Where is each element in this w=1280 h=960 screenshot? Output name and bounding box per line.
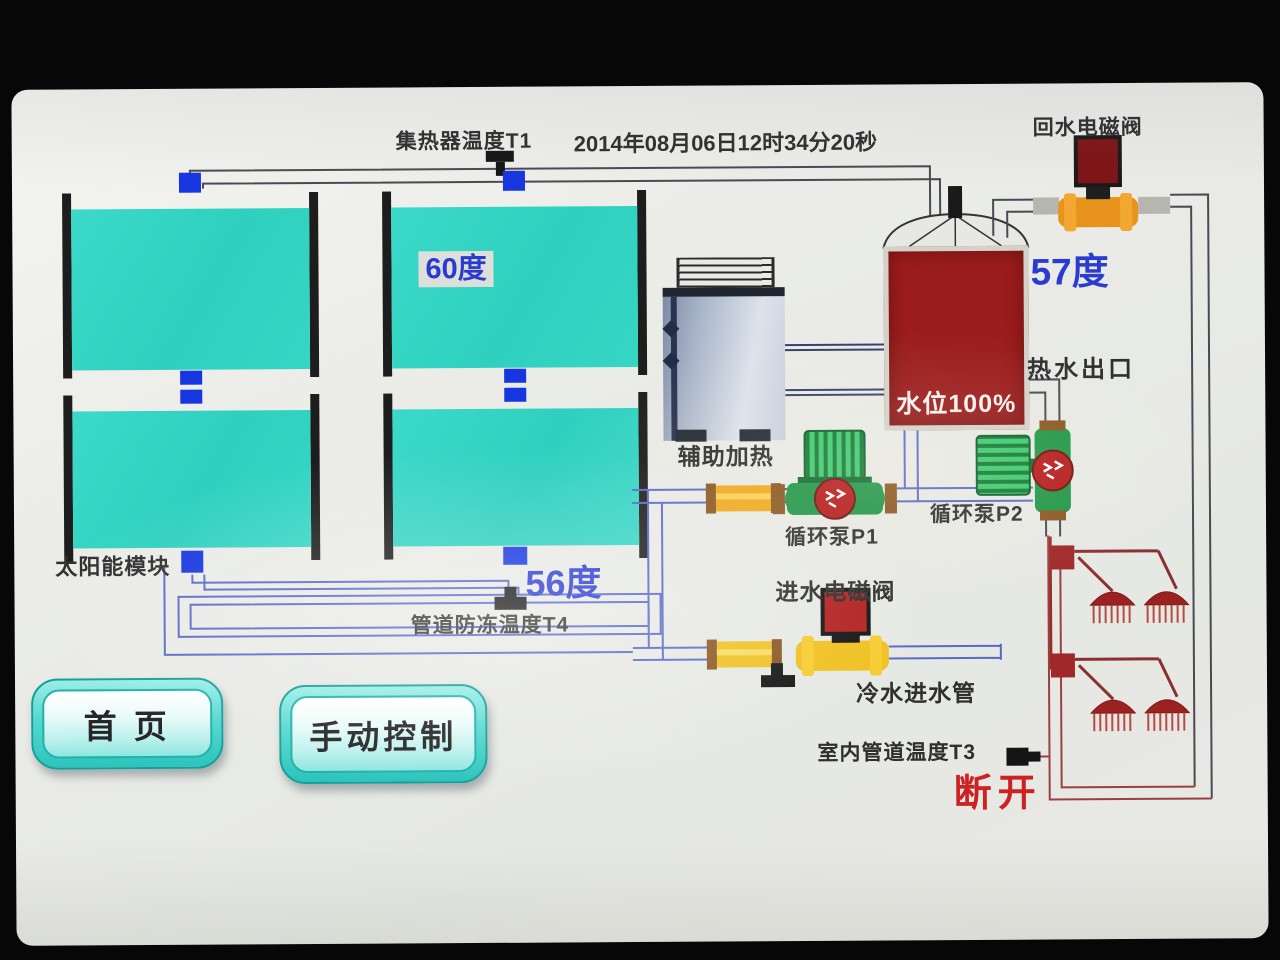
panel-connector-bottom-left: [181, 551, 203, 573]
sensor-t4-icon: [494, 587, 526, 610]
water-tank: 水位100%: [883, 246, 1029, 431]
manual-control-button[interactable]: 手动控制: [279, 684, 488, 784]
piping-diagram: [11, 82, 1268, 946]
hmi-screen: 水位100% 集热器温度T1 2014年08月06日12时34分20秒 回水电磁…: [11, 82, 1268, 946]
heater-edge: [671, 297, 678, 441]
heater-fins-icon: [676, 257, 774, 288]
solar-module-label: 太阳能模块: [55, 549, 170, 582]
auxiliary-heater-icon: [663, 287, 786, 441]
panel-connector-mid-left-b: [180, 390, 202, 404]
inlet-fitting-icon: [707, 639, 782, 669]
antifreeze-sensor-label: 管道防冻温度T4: [411, 608, 570, 639]
pump-p2-label: 循环泵P2: [930, 498, 1024, 529]
home-button-label: 首 页: [42, 689, 212, 759]
hot-water-outlet-label: 热水出口: [1027, 349, 1135, 385]
antifreeze-temp-value: 56度: [525, 554, 601, 606]
return-valve-label: 回水电磁阀: [1033, 111, 1143, 142]
collector-pipes: [190, 166, 940, 235]
manual-control-button-label: 手动控制: [290, 695, 476, 773]
datetime-text: 2014年08月06日12时34分20秒: [574, 125, 877, 159]
panel-connector-mid-right-b: [504, 388, 526, 402]
indoor-sensor-label: 室内管道温度T3: [817, 736, 976, 767]
shower-group-2: [1051, 653, 1189, 732]
heater-tank-pipes: [785, 345, 884, 396]
photo-of-hmi-screen: { "header": { "collector_temp_label": "集…: [0, 0, 1280, 960]
panel-connector-bottom-right: [503, 547, 527, 565]
return-valve-icon: [1033, 137, 1171, 232]
tank-level-text: 水位100%: [896, 384, 1016, 421]
panel-connector-mid-left-a: [180, 371, 202, 385]
panel-connector-top-right: [503, 171, 525, 191]
inlet-valve-label: 进水电磁阀: [775, 572, 895, 607]
home-button[interactable]: 首 页: [31, 678, 224, 770]
pump-p1-icon: [772, 430, 897, 519]
cold-water-label: 冷水进水管: [856, 674, 976, 709]
tank-temp-value: 57度: [1030, 241, 1108, 295]
panel-connector-top-left: [179, 173, 201, 193]
collector-temp-value: 60度: [418, 251, 493, 287]
panel-connector-mid-right-a: [504, 369, 526, 383]
auxiliary-heater-label: 辅助加热: [678, 437, 774, 472]
status-disconnected: 断开: [954, 762, 1042, 818]
pump-p1-label: 循环泵P1: [785, 521, 879, 552]
collector-temp-label: 集热器温度T1: [396, 125, 533, 156]
shower-group-1: [1050, 545, 1188, 624]
